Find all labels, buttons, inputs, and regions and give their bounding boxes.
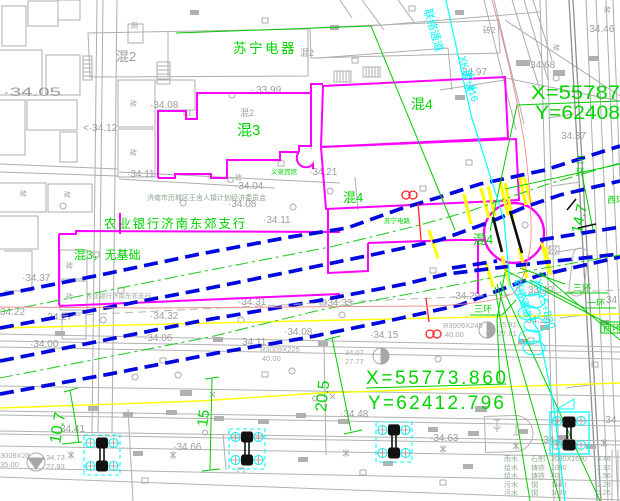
svg-text:给水: 给水 (504, 471, 518, 480)
svg-text:· 34.68: · 34.68 (524, 60, 556, 71)
svg-text:27.77: 27.77 (345, 357, 364, 366)
svg-text:砖: 砖 (553, 43, 560, 52)
svg-text:环: 环 (576, 167, 585, 177)
svg-text:·34.63: ·34.63 (430, 433, 459, 444)
svg-text:X=55787: X=55787 (531, 83, 620, 104)
svg-text:污水: 污水 (504, 488, 518, 497)
svg-text:· 33.99: · 33.99 (250, 85, 282, 96)
svg-text:·34.33: ·34.33 (324, 298, 353, 309)
svg-text:苏宁电路: 苏宁电路 (384, 216, 411, 225)
svg-text:400: 400 (551, 473, 563, 480)
svg-text:·34.04: ·34.04 (235, 181, 264, 192)
svg-text:·34.37: ·34.37 (22, 273, 51, 284)
svg-text:·34.48: ·34.48 (340, 409, 369, 420)
svg-text:27.81: 27.81 (498, 329, 517, 338)
svg-text:三: 三 (576, 155, 585, 165)
svg-text:·34: ·34 (602, 415, 617, 426)
svg-text:混3: 混3 (237, 122, 260, 139)
svg-text:苏宁电器: 苏宁电器 (233, 40, 297, 56)
svg-text:·34.05: ·34.05 (3, 85, 62, 99)
svg-text:34.73: 34.73 (46, 453, 65, 462)
svg-text:厕: 厕 (131, 22, 138, 30)
svg-text:34.07: 34.07 (345, 348, 364, 357)
svg-text:农业银行济南东郊支行: 农业银行济南东郊支行 (104, 216, 247, 231)
svg-text:·34.46: ·34.46 (586, 24, 615, 35)
svg-text:钢: 钢 (531, 480, 538, 489)
svg-text:混4: 混4 (411, 96, 433, 112)
svg-text:混4: 混4 (473, 232, 493, 247)
svg-text:石制: 石制 (531, 454, 545, 463)
svg-text:3009X28: 3009X28 (0, 451, 30, 460)
svg-text:钢: 钢 (531, 488, 538, 497)
svg-text:2.32: 2.32 (597, 465, 611, 472)
svg-text:雨水: 雨水 (504, 454, 518, 463)
svg-text:义泉宾馆: 义泉宾馆 (271, 167, 298, 176)
svg-text:35.00: 35.00 (0, 460, 19, 469)
svg-text:铸铁: 铸铁 (531, 471, 545, 480)
svg-text:34.37: 34.37 (561, 131, 586, 142)
svg-text:三环: 三环 (474, 304, 492, 314)
svg-text:1090: 1090 (551, 465, 567, 472)
svg-text:<·34.12: <·34.12 (83, 123, 118, 134)
svg-text:·34.66: ·34.66 (173, 442, 202, 453)
svg-text:1.56: 1.56 (597, 473, 611, 480)
svg-text:2090X1690: 2090X1690 (551, 456, 587, 463)
svg-text:X=55773.860: X=55773.860 (366, 368, 506, 389)
svg-text:Y=62412.796: Y=62412.796 (368, 393, 504, 414)
svg-text:西环: 西环 (603, 323, 620, 333)
svg-text:西环: 西环 (607, 195, 620, 205)
svg-text:34.22: 34.22 (0, 307, 25, 318)
svg-text:混4: 混4 (343, 190, 363, 205)
svg-text:砖: 砖 (604, 5, 611, 14)
svg-text:·34.06: ·34.06 (144, 333, 173, 344)
svg-text:给水: 给水 (504, 463, 518, 472)
svg-text:砖: 砖 (64, 190, 71, 199)
svg-text:20.5: 20.5 (313, 380, 333, 413)
svg-text:·34.08: ·34.08 (284, 327, 313, 338)
svg-text:砖: 砖 (20, 189, 27, 198)
svg-text:40.00: 40.00 (445, 330, 464, 339)
svg-text:砖: 砖 (130, 148, 137, 157)
svg-text:R3009X225: R3009X225 (260, 345, 300, 354)
svg-text:铸铁: 铸铁 (531, 463, 545, 472)
svg-text:混2: 混2 (300, 48, 314, 58)
svg-text:·34.32: ·34.32 (150, 311, 179, 322)
svg-text:·34.15: ·34.15 (370, 330, 399, 341)
svg-text:R3009X245: R3009X245 (443, 321, 483, 330)
svg-text:2.26: 2.26 (597, 490, 611, 497)
svg-text:·34.08: ·34.08 (150, 100, 179, 111)
svg-text:三环: 三环 (573, 283, 591, 293)
svg-text:混2: 混2 (116, 49, 136, 64)
svg-text:一环: 一环 (587, 298, 605, 308)
svg-text:砖: 砖 (130, 99, 137, 108)
svg-text:·34.11: ·34.11 (263, 215, 291, 226)
svg-text:济南市历城区王舍人镇计划经济委员会: 济南市历城区王舍人镇计划经济委员会 (147, 193, 266, 202)
svg-text:34: 34 (606, 295, 618, 306)
svg-text:混2: 混2 (240, 108, 254, 118)
svg-text:Y=62408: Y=62408 (535, 103, 620, 124)
svg-text:砖: 砖 (66, 261, 73, 270)
svg-text:3.48: 3.48 (597, 456, 611, 463)
svg-text:40.00: 40.00 (262, 354, 281, 363)
svg-text:2.29: 2.29 (597, 482, 611, 489)
svg-text:砖: 砖 (235, 173, 242, 182)
svg-text:砖: 砖 (66, 292, 73, 301)
svg-text:污水: 污水 (504, 480, 518, 489)
svg-text:混3，无基础: 混3，无基础 (74, 248, 141, 262)
svg-text:砖2: 砖2 (483, 25, 496, 35)
svg-text:15: 15 (194, 409, 213, 428)
svg-text:27.93: 27.93 (46, 462, 65, 471)
svg-text:·34.11: ·34.11 (127, 169, 155, 180)
